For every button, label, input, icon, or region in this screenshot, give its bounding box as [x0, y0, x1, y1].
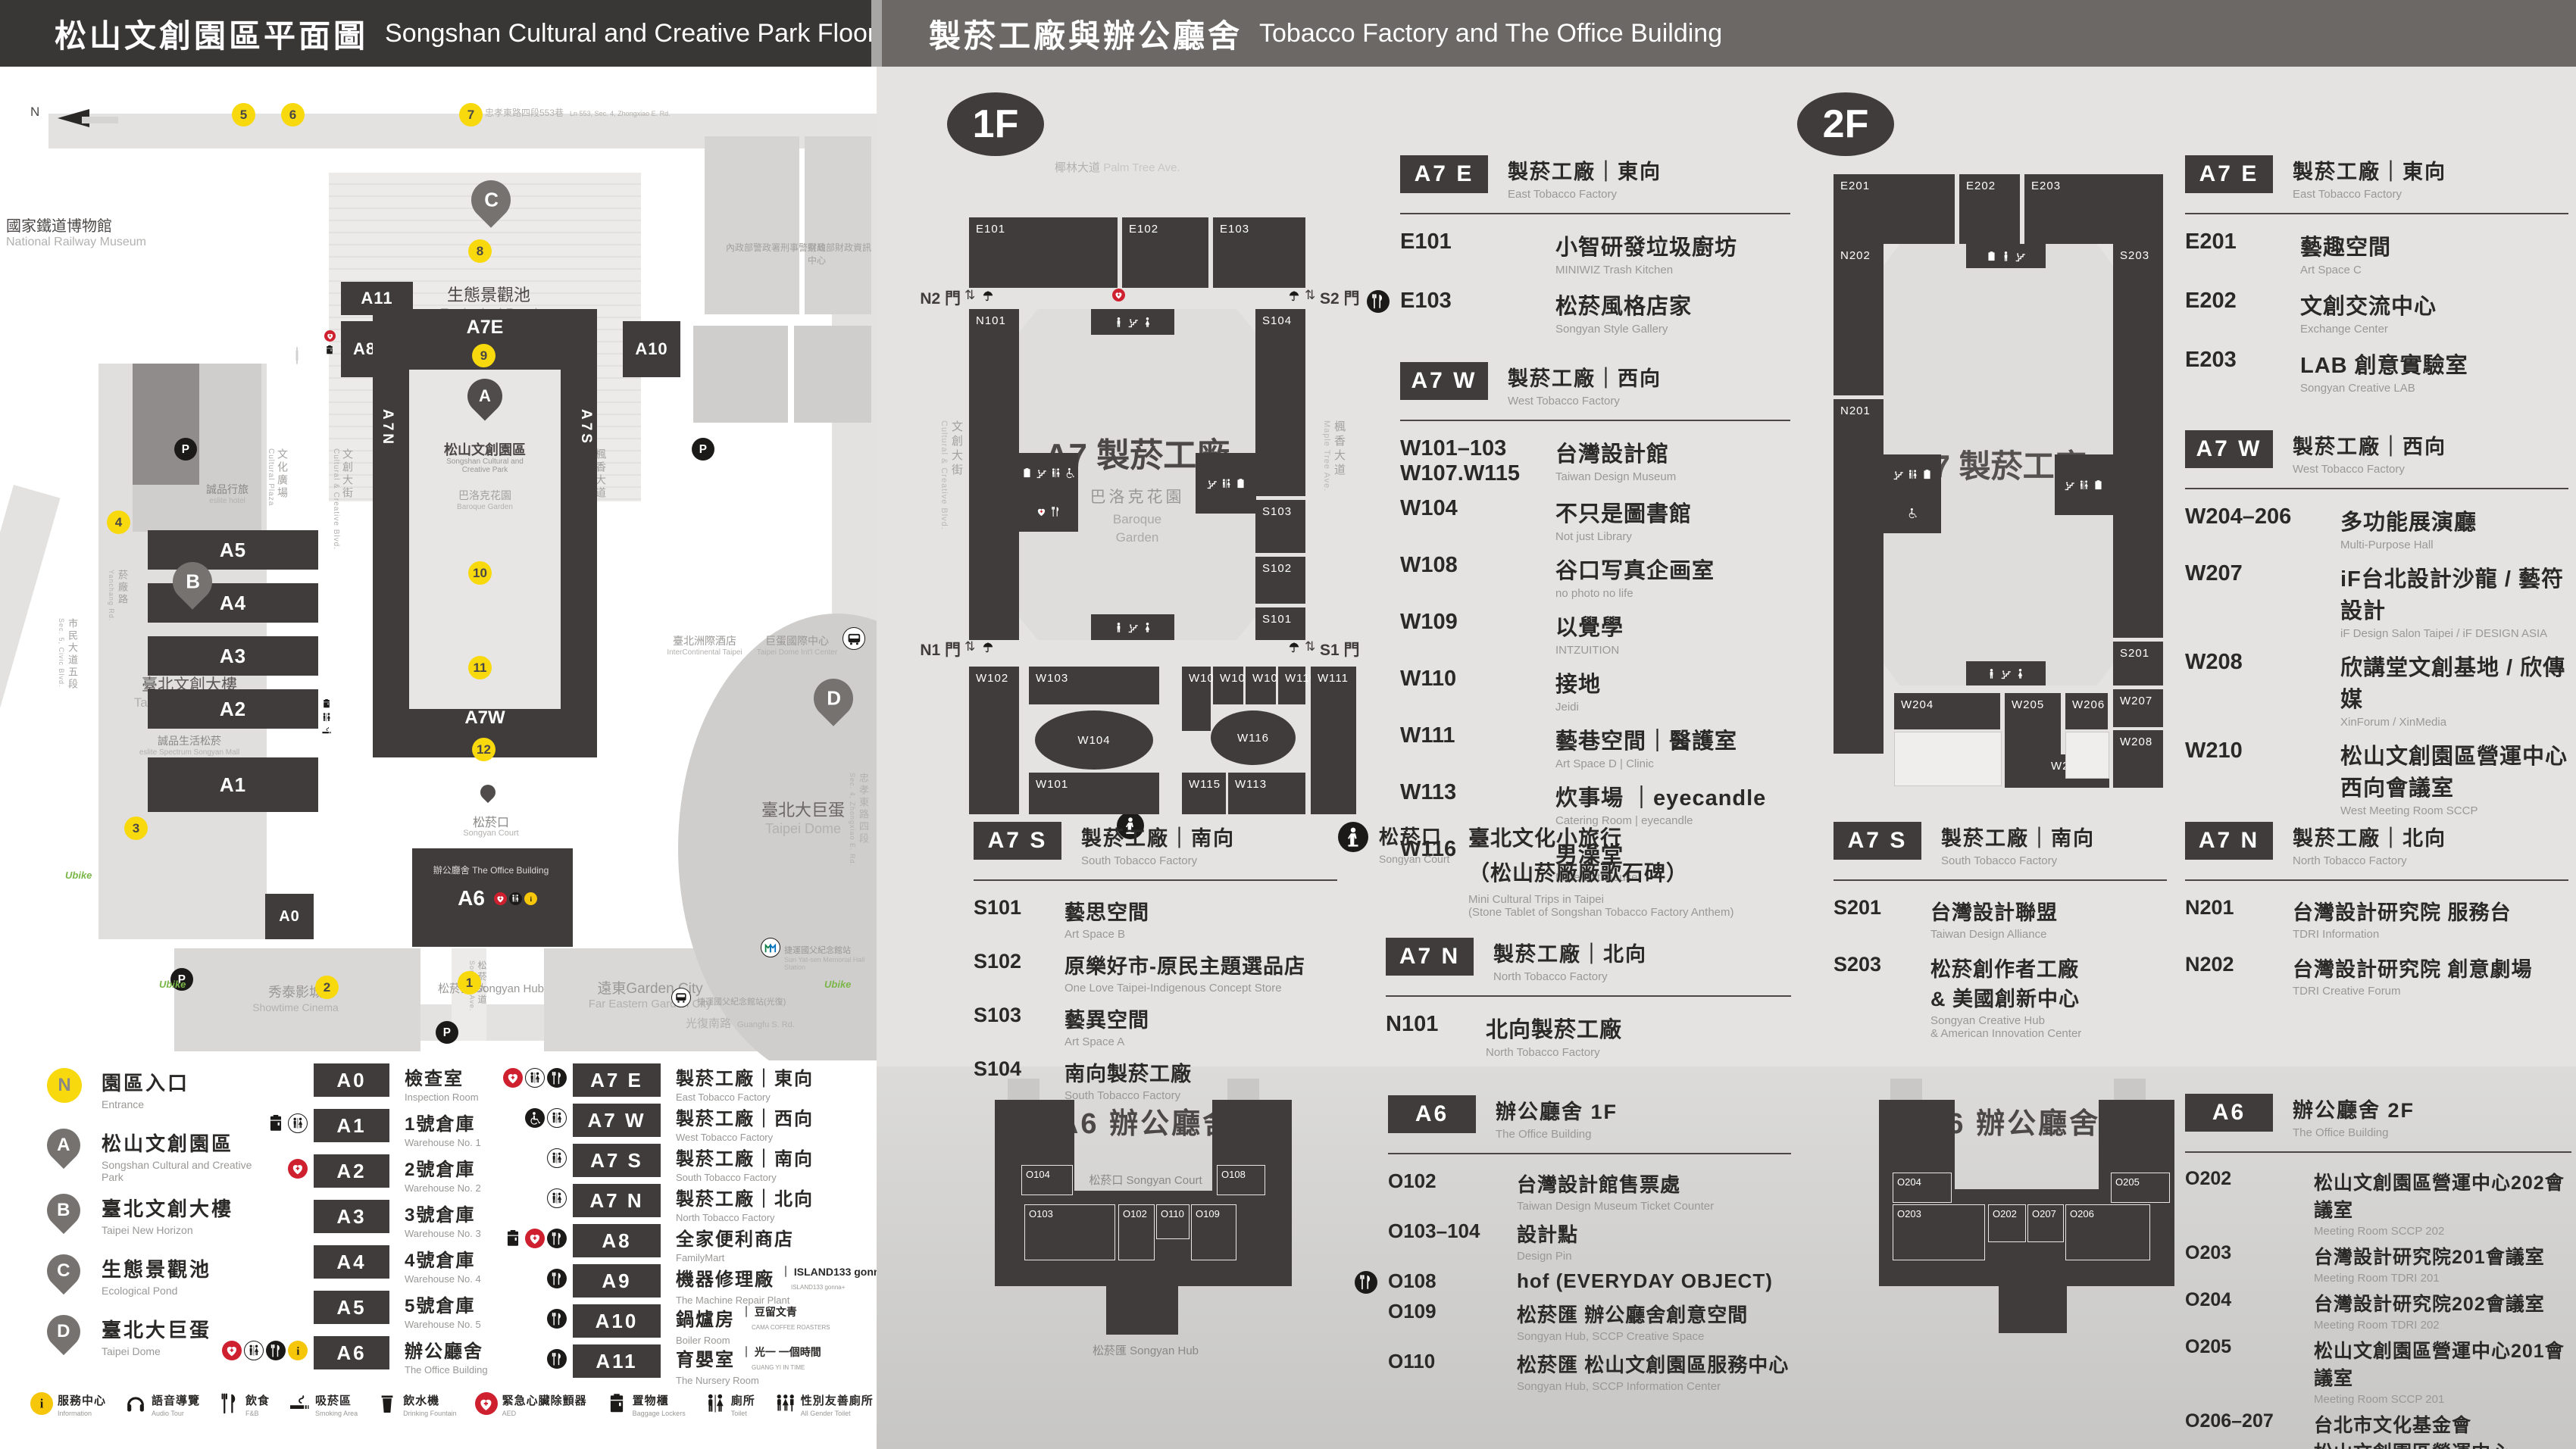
map-building-A1: A1: [148, 757, 318, 812]
room-code: W210: [2185, 739, 2340, 764]
room-en: Meeting Room SCCP 202: [2314, 1225, 2571, 1238]
legend-cjk: 3號倉庫: [405, 1200, 475, 1226]
room-en: iF Design Salon Taipei / iF DESIGN ASIA: [2340, 627, 2568, 640]
room-W102: W102: [969, 667, 1019, 814]
list-row-E103: E103松菸風格店家Songyan Style Gallery: [1400, 289, 1790, 336]
legend-badge: A11: [573, 1344, 661, 1378]
room-name: 台灣設計館售票處: [1517, 1170, 1714, 1198]
legend-sub-en: ISLAND133 gonna+: [791, 1284, 845, 1291]
map-label-en: Sec. 4, Zhongxiao E. Rd.: [849, 773, 856, 867]
legend-cjk: 全家便利商店: [676, 1224, 794, 1251]
dining-icon: [266, 1341, 286, 1360]
room-S103: S103: [1255, 500, 1305, 553]
map-label-cjk: 巨蛋國際中心: [757, 633, 837, 648]
map-label: 遠東Garden CityFar Eastern Garden City: [589, 977, 712, 1010]
room-E101: E101: [969, 217, 1118, 288]
room-name: 炊事場 ｜eyecandle: [1555, 780, 1766, 812]
list-row-N201: N201台灣設計研究院 服務台TDRI Information: [2185, 896, 2568, 941]
bus-icon: [843, 627, 865, 650]
road-stub: [2114, 1079, 2146, 1101]
pin-c: C: [40, 1248, 87, 1294]
road-stub: [1890, 1079, 1922, 1101]
room-O206: O206: [2065, 1204, 2150, 1260]
floor2-badge: 2F: [1797, 92, 1894, 156]
list-row-O103–104: O103–104設計點Design Pin: [1388, 1219, 1791, 1263]
restroom-icon: [547, 1188, 567, 1208]
map-label-cjk: 忠孝東路四段: [856, 773, 871, 867]
room-label: E103: [1213, 217, 1305, 236]
men-icon: [1113, 622, 1124, 633]
room-en: Not just Library: [1555, 530, 1692, 543]
legend-item-A9: A9機器修理廠｜ ISLAND133 gonna+ISLAND133 gonna…: [491, 1264, 892, 1297]
accessible-icon: [1064, 467, 1076, 479]
strip-item-locker: 置物櫃Baggage Lockers: [605, 1392, 686, 1417]
list-row-W108: W108谷口写真企画室no photo no life: [1400, 553, 1790, 600]
legend-en: Taipei Dome: [102, 1345, 211, 1357]
map-label-cjk: 文化廣場: [275, 448, 290, 506]
room-en: TDRI Creative Forum: [2293, 985, 2533, 998]
strip-en: Information: [58, 1410, 106, 1417]
room-label: O204: [1893, 1173, 1951, 1188]
room-code: S104: [974, 1057, 1064, 1081]
svg-text:P: P: [699, 443, 707, 456]
room-W115: W115: [1182, 773, 1226, 814]
room-label: E101: [969, 217, 1118, 236]
room-en: Taiwan Design Alliance: [1930, 928, 2058, 941]
strip-item-aed: 緊急心臟除顫器AED: [475, 1392, 587, 1417]
room-S201: S201: [2113, 642, 2163, 685]
aed-icon: [288, 1159, 308, 1179]
dining-icon: [547, 1068, 567, 1088]
strip-item-dining: 飲食F&B: [218, 1392, 270, 1417]
map-marker-1: 1: [458, 971, 481, 995]
section-header: A7 E製菸工廠｜東向East Tobacco Factory: [2185, 155, 2568, 201]
list-row-S201: S201台灣設計聯盟Taiwan Design Alliance: [1834, 896, 2167, 941]
room-label: W205: [2005, 693, 2061, 711]
list-row-W210: W210松山文創園區營運中心西向會議室West Meeting Room SCC…: [2185, 739, 2568, 817]
icon-cluster: [1196, 453, 1256, 514]
legend-badge: A9: [573, 1264, 661, 1298]
room-O102: O102: [1118, 1204, 1155, 1260]
room-name2: 松山文創園區營運中心: [2314, 1438, 2571, 1449]
block-eslite-garage: [133, 364, 199, 485]
icon-cluster: [1091, 309, 1174, 335]
header-right: 製菸工廠與辦公廳舍 Tobacco Factory and The Office…: [882, 0, 2576, 67]
map-label-en: eslite Spectrum Songyan Mall: [139, 748, 239, 757]
info-icon: i: [30, 1392, 53, 1415]
stairs-icon: [1127, 622, 1139, 633]
dotted-area: [270, 138, 324, 573]
legend-badge: A0: [314, 1063, 389, 1097]
legend-cjk: 生態景觀池: [102, 1254, 211, 1282]
section-title: 製菸工廠與辦公廳舍: [929, 11, 1243, 57]
legend-icons: [491, 1224, 567, 1248]
room-name: 台灣設計聯盟: [1930, 896, 2058, 926]
legend-cjk: 製菸工廠｜北向: [676, 1184, 814, 1210]
strip-cjk: 性別友善廁所: [801, 1394, 874, 1407]
umbrella-icon: [982, 290, 994, 302]
map-label-en: Showtime Cinema: [252, 1001, 339, 1013]
bus-icon: [671, 988, 691, 1007]
legend-en: North Tobacco Factory: [676, 1212, 814, 1223]
legend-en: Warehouse No. 4: [405, 1273, 481, 1285]
room-code: E202: [2185, 289, 2300, 314]
street-cjk: 文創大街: [949, 420, 964, 530]
restroom-icon: [1907, 469, 1918, 480]
map-building-A5: A5: [148, 530, 318, 570]
room-label: W207: [2113, 689, 2163, 707]
legend-en: Ecological Pond: [102, 1285, 211, 1297]
section-badge: A7 S: [1834, 822, 1921, 860]
room-label: W110: [1278, 667, 1305, 685]
songyan-cjk: 松菸口: [1379, 822, 1458, 850]
legend-item-A8: A8全家便利商店FamilyMart: [491, 1224, 892, 1257]
icon-cluster: [1966, 661, 2046, 685]
legend-cjk: 臺北大巨蛋: [102, 1315, 211, 1343]
dining-icon: [1050, 506, 1061, 517]
section-title-en: West Tobacco Factory: [2293, 463, 2446, 476]
room-name: 藝巷空間｜醫護室: [1555, 723, 1737, 755]
room-code: W207: [2185, 561, 2340, 586]
room-code: W101–103: [1400, 436, 1555, 461]
section-title-cjk: 製菸工廠｜西向: [2293, 430, 2446, 460]
restroom-icon: [244, 1341, 264, 1360]
section-title-en: South Tobacco Factory: [1081, 854, 1235, 867]
room-name: 台灣設計研究院201會議室: [2314, 1242, 2545, 1269]
room-en: Taiwan Design Museum: [1555, 470, 1676, 483]
room-name: 藝趣空間: [2300, 230, 2391, 261]
strip-item-fountain: 飲水機Drinking Fountain: [376, 1392, 457, 1417]
a7-garden-en: Baroque Garden: [457, 503, 513, 511]
restroom-icon: [525, 1068, 545, 1088]
legend-cjk: 製菸工廠｜南向: [676, 1144, 814, 1170]
room-name: 台灣設計館: [1555, 436, 1676, 468]
section-badge: A7 N: [1386, 938, 1474, 976]
legend-item-A6: iA6辦公廳舍The Office Building: [244, 1336, 488, 1374]
section-badge: A7 W: [2185, 430, 2273, 468]
room-W103: W103: [1029, 667, 1159, 704]
room-name: 松山文創園區營運中心: [2340, 739, 2568, 770]
umbrella-icon: [1288, 290, 1300, 302]
smoking-icon: [288, 1392, 311, 1415]
legend-item-A5: A55號倉庫Warehouse No. 5: [244, 1291, 488, 1329]
entrance-marker: N: [47, 1068, 82, 1103]
restroom-icon: [321, 712, 332, 723]
svg-text:P: P: [182, 443, 189, 456]
room-name: 松菸風格店家: [1555, 289, 1692, 320]
a6-diagram-title: A6 辦公廳舍: [1058, 1100, 1233, 1141]
room-code: W111: [1400, 723, 1555, 748]
map-label-en: Yanchang Rd.: [108, 570, 115, 621]
room-code: O103–104: [1388, 1219, 1517, 1243]
list-row-O205: O205松山文創園區營運中心201會議室Meeting Room SCCP 20…: [2185, 1336, 2571, 1406]
stairs-icon: [1206, 478, 1218, 489]
room-name: 以覺學: [1555, 610, 1624, 642]
room-name: 松山文創園區營運中心202會議室: [2314, 1168, 2571, 1223]
room-name: LAB 創意實驗室: [2300, 348, 2468, 379]
legend-cjk: 機器修理廠: [676, 1264, 774, 1291]
legend-badge: A4: [314, 1245, 389, 1279]
map-label-cjk: 誠品生活松菸: [139, 733, 239, 748]
men-icon: [1986, 668, 1997, 679]
gate-label: S1 門: [1320, 638, 1402, 660]
legend-en: East Tobacco Factory: [676, 1091, 814, 1103]
room-en: Art Space D | Clinic: [1555, 757, 1737, 770]
room-code: O110: [1388, 1350, 1517, 1373]
legend-cjk: 辦公廳舍: [405, 1336, 483, 1363]
section-header: A7 N製菸工廠｜北向North Tobacco Factory: [1386, 938, 1791, 983]
songyan-en1: Mini Cultural Trips in Taipei: [1468, 893, 1734, 906]
legend-item-A3: A33號倉庫Warehouse No. 3: [244, 1200, 488, 1238]
legend-badge: A1: [314, 1109, 389, 1142]
room-name: 谷口写真企画室: [1555, 553, 1715, 585]
map-label-cjk: 遠東Garden City: [589, 977, 712, 998]
block-hotel: [693, 326, 788, 423]
a7w-label: A7W: [464, 707, 505, 729]
map-label-cjk: 市民大道五段: [65, 618, 80, 691]
room-code: O202: [2185, 1168, 2314, 1190]
map-label-cjk: 捷運國父紀念館站: [784, 944, 877, 956]
pin-letter: A: [479, 386, 491, 406]
map-marker-8: 8: [468, 239, 492, 263]
room-code: S203: [1834, 953, 1930, 976]
map-building-A10: A10: [623, 321, 680, 377]
map-label: 忠孝東路四段Sec. 4, Zhongxiao E. Rd.: [849, 773, 871, 867]
legend-col: A0檢查室Inspection RoomA11號倉庫Warehouse No. …: [244, 1063, 488, 1382]
dining-icon: [547, 1349, 567, 1369]
pin-letter: D: [827, 687, 841, 710]
room-O207: O207: [2027, 1204, 2064, 1242]
map-label: 文化廣場Cultural Plaza: [267, 448, 290, 506]
locker-icon: [1921, 469, 1933, 480]
legend-cjk: 1號倉庫: [405, 1109, 475, 1135]
room-en: Meeting Room SCCP 201: [2314, 1393, 2571, 1406]
legend-col1: N園區入口EntranceA松山文創園區Songshan Cultural an…: [47, 1068, 274, 1376]
map-label-cjk: 財政部財政資訊中心: [808, 241, 877, 267]
room-name: 不只是圖書館: [1555, 496, 1692, 528]
room-code: E201: [2185, 230, 2300, 255]
stairs-icon: [1127, 317, 1139, 328]
room-E102: E102: [1122, 217, 1208, 288]
aed-icon: [1036, 506, 1047, 517]
legend-sub: ｜ 豆留文青: [741, 1306, 797, 1318]
dining-icon: [547, 1269, 567, 1288]
section-title-cjk: 製菸工廠｜西向: [1508, 362, 1662, 392]
section-header: A7 W製菸工廠｜西向West Tobacco Factory: [1400, 362, 1790, 408]
room-S203: S203: [2113, 244, 2163, 638]
legend-item-D: D臺北大巨蛋Taipei Dome: [47, 1315, 274, 1363]
room-label: S102: [1255, 557, 1305, 575]
map-label-en: Ln 553, Sec. 4, Zhongxiao E. Rd.: [570, 110, 671, 117]
section-title-en: Tobacco Factory and The Office Building: [1259, 19, 1722, 48]
section-badge: A7 W: [1400, 362, 1488, 400]
map-label: 財政部財政資訊中心: [808, 241, 877, 267]
strip-cjk: 飲食: [245, 1394, 270, 1407]
room-code: W208: [2185, 650, 2340, 675]
section-header: A7 S製菸工廠｜南向South Tobacco Factory: [1834, 822, 2167, 867]
men-icon: [2000, 251, 2012, 262]
room-O205: O205: [2111, 1173, 2170, 1203]
gate-arrows-s1: ⇅: [1305, 639, 1315, 654]
map-label: 菸廠路Yanchang Rd.: [108, 570, 130, 621]
icon-cluster: [1966, 244, 2046, 268]
room-code2: W107.W115: [1400, 461, 1555, 486]
page-title-en: Songshan Cultural and Creative Park Floo…: [385, 19, 935, 48]
header-left: 松山文創園區平面圖 Songshan Cultural and Creative…: [0, 0, 871, 67]
room-name: 松山文創園區營運中心201會議室: [2314, 1336, 2571, 1391]
strip-en: Audio Tour: [152, 1410, 200, 1417]
court-label-en: Songyan Court: [463, 829, 518, 838]
list-row-W207: W207iF台北設計沙龍 / 藝符設計iF Design Salon Taipe…: [2185, 561, 2568, 640]
legend-en: West Tobacco Factory: [676, 1132, 814, 1143]
room-label: N101: [969, 309, 1019, 327]
list-row-S103: S103藝異空間Art Space A: [974, 1004, 1337, 1048]
legend-sub: ｜ 光一 一個時間: [741, 1346, 821, 1358]
legend-en: Warehouse No. 2: [405, 1182, 481, 1194]
section-title-cjk: 製菸工廠｜南向: [1941, 822, 2095, 851]
map-marker-9: 9: [472, 344, 496, 367]
legend-icons: [491, 1264, 567, 1288]
map-label: 市民大道五段Sec. 5, Civic Blvd.: [58, 618, 80, 691]
room-code: N101: [1386, 1012, 1486, 1037]
street-en: Cultural & Creative Blvd.: [939, 420, 949, 530]
pin-letter: A: [57, 1135, 70, 1156]
strip-en: Smoking Area: [315, 1410, 358, 1417]
room-label: S201: [2113, 642, 2163, 660]
room-label: W113: [1228, 773, 1305, 791]
room-en: XinForum / XinMedia: [2340, 716, 2568, 729]
room-code: E103: [1400, 289, 1555, 314]
room-name: 松菸匯 辦公廳舍創意空間: [1517, 1300, 1748, 1328]
strip-cjk: 服務中心: [58, 1394, 106, 1407]
room-code: W110: [1400, 667, 1555, 692]
pin-d: D: [40, 1308, 87, 1355]
parking-icon: P: [692, 438, 714, 461]
section-header: A7 E製菸工廠｜東向East Tobacco Factory: [1400, 155, 1790, 201]
room-en: Design Pin: [1517, 1250, 1578, 1263]
room-label: O102: [1119, 1205, 1154, 1219]
room-name: 松菸創作者工廠: [1930, 953, 2081, 982]
room-N202: N202: [1834, 244, 1884, 395]
section-title-cjk: 辦公廳舍 1F: [1496, 1095, 1618, 1125]
strip-en: F&B: [245, 1410, 270, 1417]
room-en: Art Space B: [1064, 928, 1149, 941]
room-name: 小智研發垃圾廚坊: [1555, 230, 1737, 261]
aed-icon: [503, 1068, 523, 1088]
map-building-A0: A0: [265, 894, 314, 939]
room-W110: W110: [1278, 667, 1305, 704]
legend-en: South Tobacco Factory: [676, 1172, 814, 1183]
list-row-W204–206: W204–206多功能展演廳Multi-Purpose Hall: [2185, 504, 2568, 551]
aed-icon: [475, 1392, 498, 1415]
list-row-E201: E201藝趣空間Art Space C: [2185, 230, 2568, 276]
room-code: W109: [1400, 610, 1555, 635]
compass-tail: [82, 117, 118, 123]
aed-icon: [222, 1341, 242, 1360]
room-en: MINIWIZ Trash Kitchen: [1555, 264, 1737, 276]
floor-plan-poster: 松山文創園區平面圖 Songshan Cultural and Creative…: [0, 0, 2576, 1449]
list-section-A7E: A7 E製菸工廠｜東向East Tobacco FactoryE101小智研發垃…: [1400, 155, 1790, 348]
section-title-cjk: 辦公廳舍 2F: [2293, 1094, 2415, 1123]
locker-icon: [266, 1113, 286, 1133]
section-title-en: North Tobacco Factory: [2293, 854, 2446, 867]
strip-cjk: 廁所: [731, 1394, 755, 1407]
room-label: O104: [1022, 1166, 1072, 1180]
locker-icon: [321, 698, 332, 709]
room-label: O103: [1025, 1205, 1114, 1219]
list-row-W104: W104不只是圖書館Not just Library: [1400, 496, 1790, 543]
legend-sub: ｜ ISLAND133 gonna+: [780, 1266, 892, 1278]
room-label: E202: [1959, 174, 2020, 192]
list-section-A7E: A7 E製菸工廠｜東向East Tobacco FactoryE201藝趣空間A…: [2185, 155, 2568, 407]
room-W116: W116: [1211, 710, 1296, 765]
stairs-icon: [2000, 668, 2012, 679]
legend-badge: A10: [573, 1304, 661, 1338]
section-title-cjk: 製菸工廠｜東向: [2293, 155, 2446, 185]
room-name: 北向製菸工廠: [1486, 1012, 1622, 1044]
room-name: 藝異空間: [1064, 1004, 1149, 1033]
room-code: O206–207: [2185, 1410, 2314, 1432]
list-section-A6: A6辦公廳舍 1FThe Office BuildingO102台灣設計館售票處…: [1388, 1095, 1791, 1400]
room-label: O108: [1218, 1166, 1265, 1180]
dining-icon: [218, 1392, 241, 1415]
room-label: O205: [2112, 1173, 2169, 1188]
info-icon: i: [288, 1341, 308, 1360]
map-label-en: Taipei Dome: [761, 821, 845, 837]
map-building-A2: A2: [148, 689, 318, 729]
aed-icon: [1112, 289, 1125, 301]
room-name2: 西向會議室: [2340, 770, 2568, 802]
block-dome-intl: [794, 326, 871, 423]
room-label: E203: [2024, 174, 2163, 192]
strip-en: Toilet: [731, 1410, 755, 1417]
room-label: N202: [1834, 244, 1884, 262]
room-en: North Tobacco Factory: [1486, 1046, 1622, 1059]
room-E203: E203: [2024, 174, 2163, 244]
legend-cjk: 松山文創園區: [102, 1129, 261, 1157]
room-N101: N101: [969, 309, 1019, 640]
room-name: 台北市文化基金會: [2314, 1410, 2571, 1438]
list-row-W113: W113炊事場 ｜eyecandleCatering Room | eyecan…: [1400, 780, 1790, 827]
legend-badge: A6: [314, 1336, 389, 1369]
legend-icons: [491, 1304, 567, 1329]
gate-arrows-s2: ⇅: [1305, 288, 1315, 303]
pin-letter: B: [57, 1200, 70, 1221]
map-marker-12: 12: [472, 738, 496, 761]
strip-en: Drinking Fountain: [403, 1410, 457, 1417]
room-name: 多功能展演廳: [2340, 504, 2477, 536]
stairs-icon: [2064, 479, 2075, 491]
legend-icons: [491, 1344, 567, 1369]
icon-cluster: [1019, 453, 1078, 532]
court-pin-icon: [477, 782, 499, 803]
locker-icon: [1986, 251, 1997, 262]
legend-item-B: B臺北文創大樓Taipei New Horizon: [47, 1194, 274, 1242]
room-W208: W208: [2113, 730, 2163, 788]
stairs-icon: [1893, 469, 1904, 480]
room-label: W109: [1246, 667, 1276, 685]
legend-icons: [244, 1109, 308, 1133]
smoking-icon: [321, 726, 332, 736]
map-marker-10: 10: [468, 561, 492, 585]
pin-letter: C: [484, 189, 499, 212]
list-row-O109: O109松菸匯 辦公廳舍創意空間Songyan Hub, SCCP Creati…: [1388, 1300, 1791, 1343]
svg-text:i: i: [530, 896, 532, 904]
strip-cjk: 置物櫃: [633, 1394, 669, 1407]
street-label: 文創大街Cultural & Creative Blvd.: [939, 420, 964, 530]
room-label: O207: [2028, 1205, 2063, 1219]
aed-icon: [494, 892, 507, 905]
